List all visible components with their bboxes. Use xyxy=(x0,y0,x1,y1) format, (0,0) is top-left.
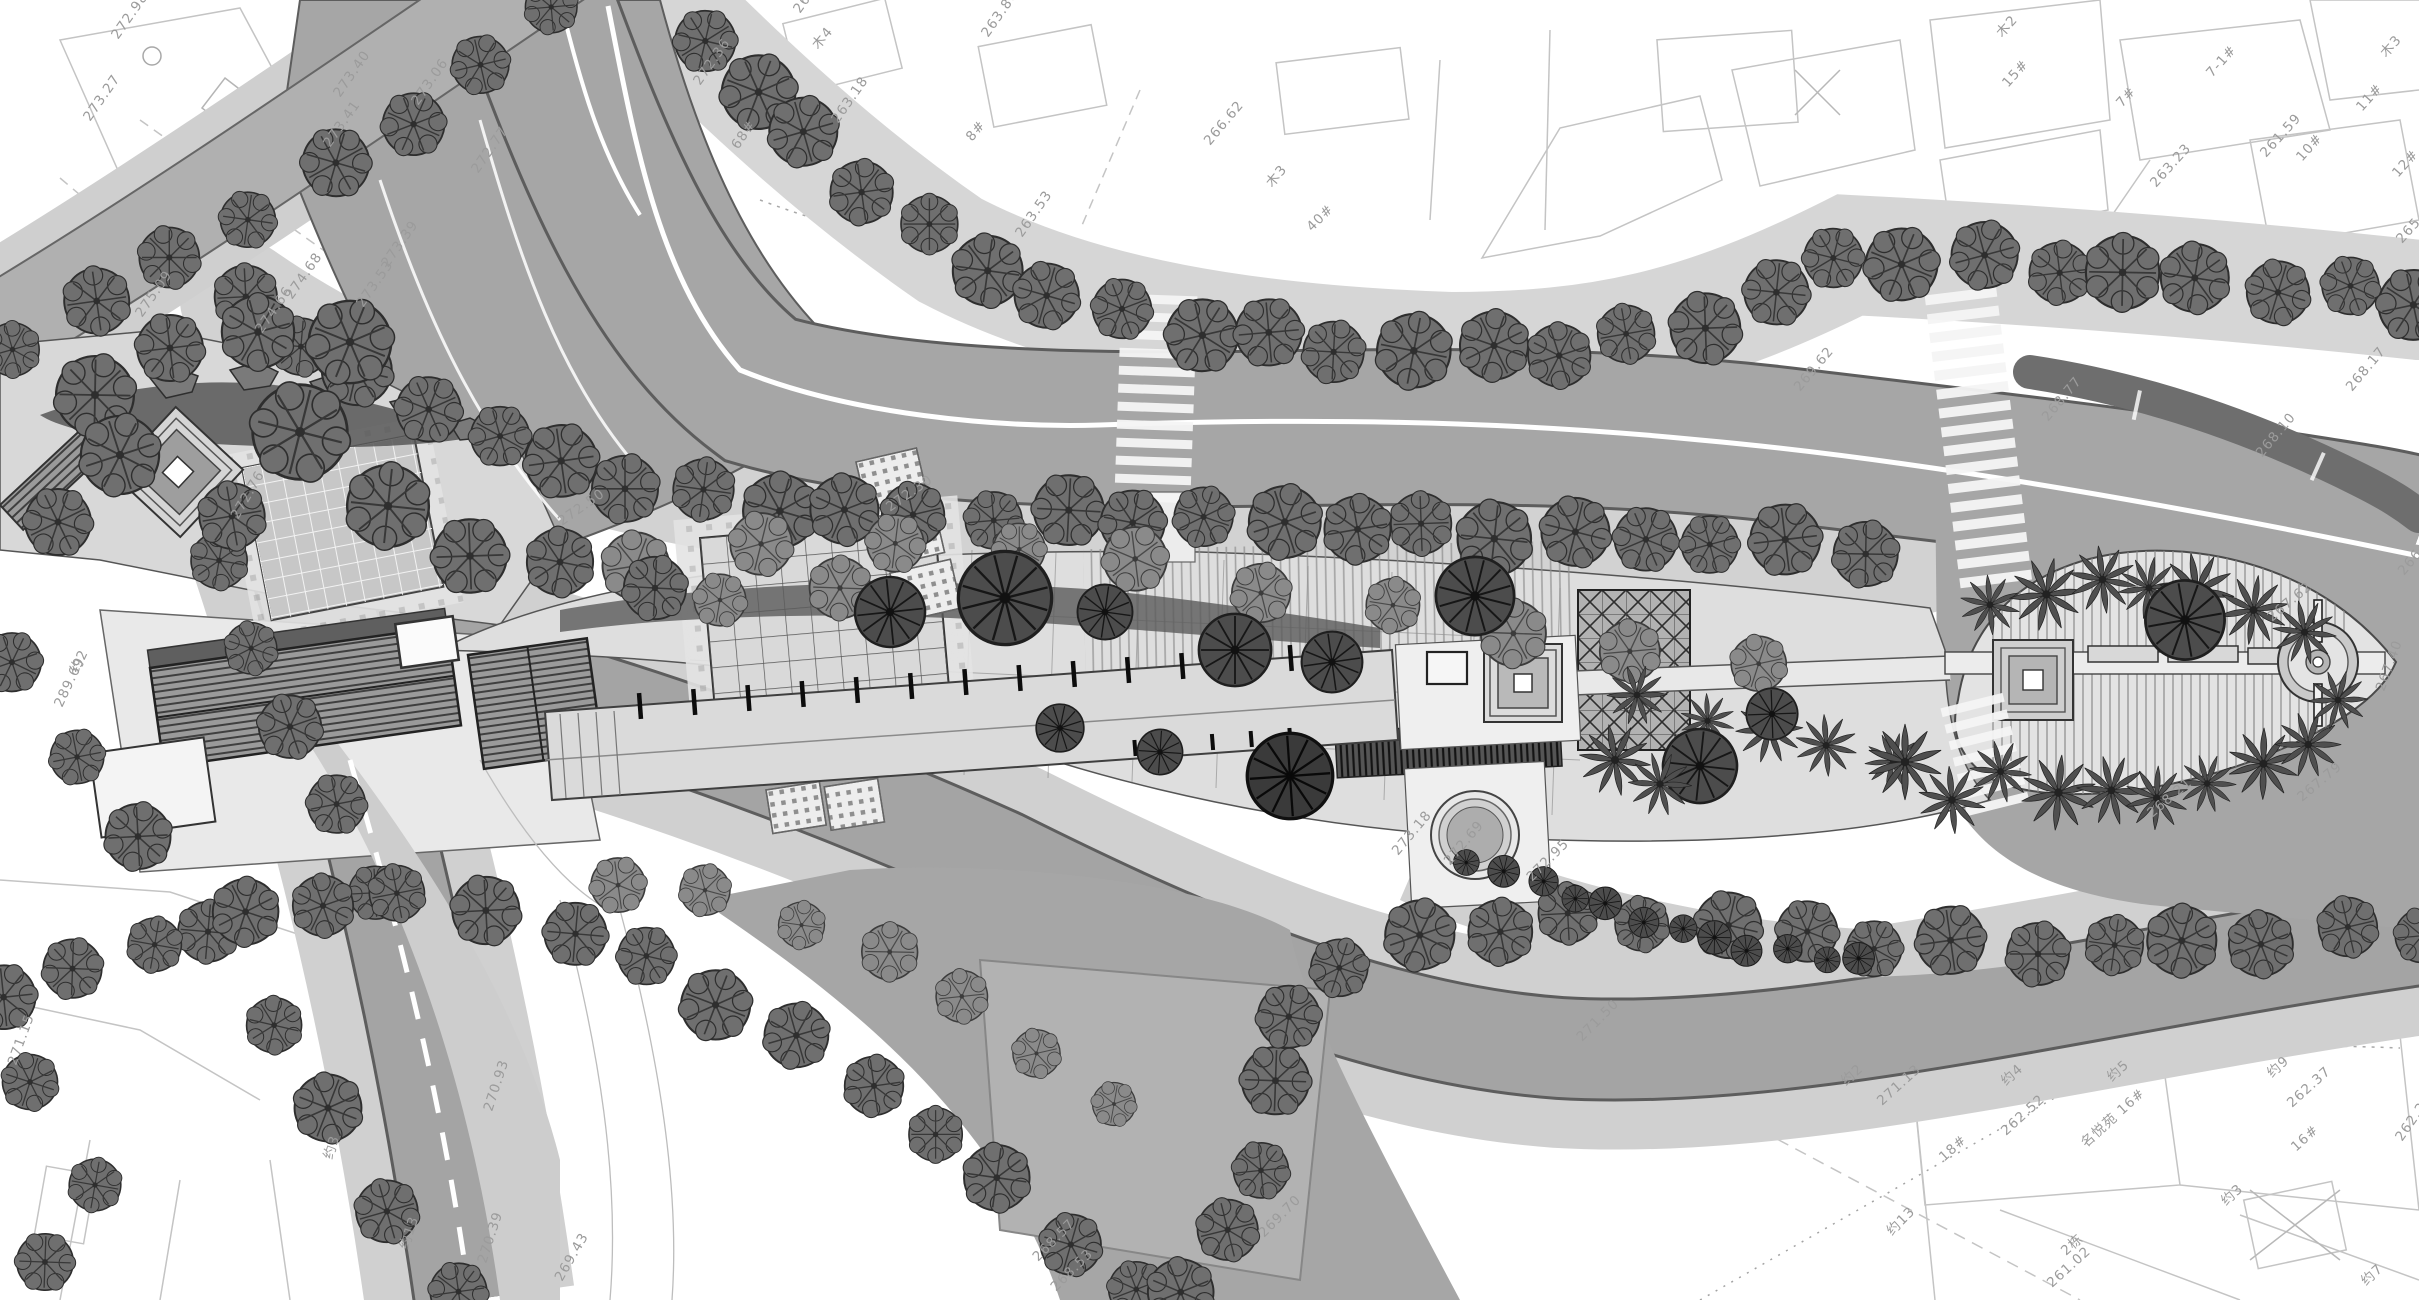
masterplan-drawing: 272.98273.27275.09274.66274.68273.53273.… xyxy=(0,0,2419,1300)
bench-tick xyxy=(693,689,695,715)
bench-tick xyxy=(1212,734,1213,750)
bench-tick xyxy=(964,669,966,695)
square-fountain-east xyxy=(1993,640,2073,720)
shrub xyxy=(1562,885,1589,912)
bench-tick xyxy=(1134,740,1135,756)
bench-tick xyxy=(1290,645,1292,671)
bench-tick xyxy=(856,677,858,703)
bench-tick xyxy=(802,681,804,707)
small-pavilion xyxy=(395,616,459,668)
shrub xyxy=(1199,614,1271,686)
bench-tick xyxy=(910,673,912,699)
bench-tick xyxy=(1251,731,1252,747)
bench-tick xyxy=(1019,665,1021,691)
bench-tick xyxy=(1181,653,1183,679)
bench-tick xyxy=(639,693,641,719)
site-plan-canvas: 272.98273.27275.09274.66274.68273.53273.… xyxy=(0,0,2419,1300)
bench-tick xyxy=(1127,657,1129,683)
bench-tick xyxy=(1073,661,1075,687)
bench-tick xyxy=(748,685,750,711)
